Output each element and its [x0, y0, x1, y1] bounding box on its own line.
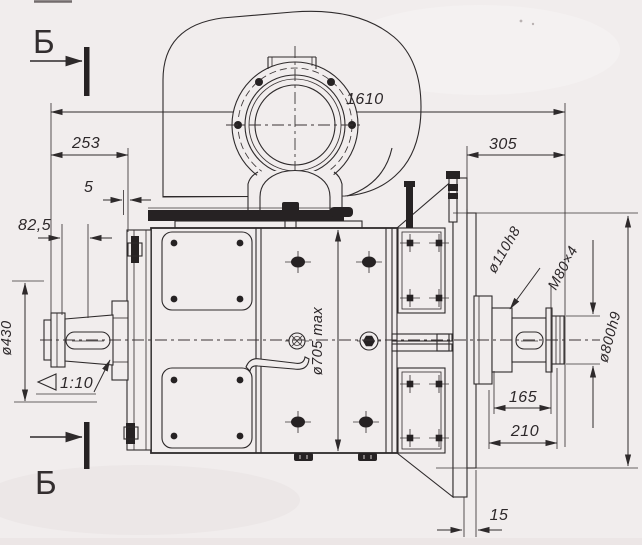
dim-5-label: 5 — [84, 179, 93, 196]
inspection-cover-upper — [162, 232, 252, 310]
dim-430-label: ø430 — [0, 320, 15, 355]
inspection-cover-lower — [162, 368, 252, 448]
dim-82-5-label: 82,5 — [18, 217, 51, 234]
dim-253-label: 253 — [71, 135, 100, 152]
grease-fitting-top — [131, 236, 139, 263]
dim-705-label: ø705 max — [310, 307, 326, 376]
terminal-box-upper — [398, 228, 449, 313]
dim-210-label: 210 — [510, 423, 539, 440]
grease-fitting-bottom — [126, 423, 135, 444]
engineering-drawing-sheet: Б Б 1610 253 5 82,5 305 165 210 15 1:10 … — [0, 0, 642, 545]
mounting-flange — [453, 178, 467, 497]
drawing-canvas: Б Б 1610 253 5 82,5 305 165 210 15 1:10 … — [0, 0, 642, 545]
dim-305-label: 305 — [489, 136, 517, 153]
taper-ratio-label: 1:10 — [60, 375, 93, 392]
terminal-box-lower — [398, 368, 449, 453]
section-letter-top: Б — [33, 23, 55, 60]
right-keyway — [516, 332, 543, 349]
motor-frame — [151, 228, 430, 461]
left-keyway — [66, 332, 110, 349]
plate-end-bolt — [330, 207, 353, 217]
dim-15-label: 15 — [490, 507, 509, 524]
section-letter-bottom: Б — [35, 464, 57, 501]
dim-1610-label: 1610 — [346, 91, 384, 108]
dim-165-label: 165 — [509, 389, 537, 406]
